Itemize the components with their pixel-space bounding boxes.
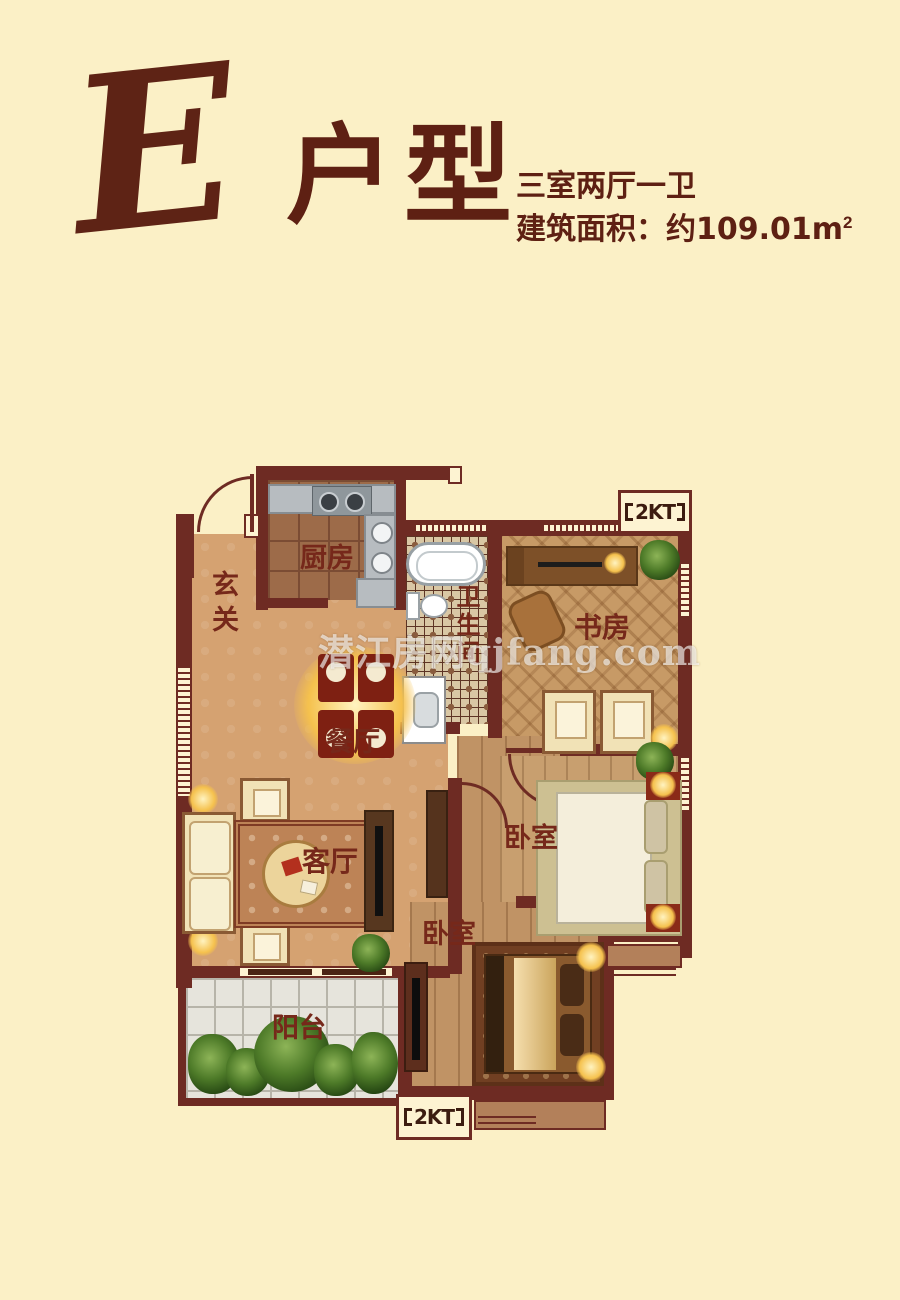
flyer-page: { "header": { "letter": "E", "title": "户… — [0, 0, 900, 1300]
toilet-bowl-icon — [420, 594, 448, 618]
bracket-icon — [456, 1108, 464, 1126]
bracket-icon — [625, 503, 633, 521]
lamp-icon — [188, 784, 218, 814]
wall-segment — [256, 598, 328, 608]
book-icon — [281, 857, 303, 877]
bed-icon — [556, 792, 652, 924]
lamp-icon — [576, 942, 606, 972]
armchair-icon — [240, 922, 290, 966]
window-ledge-hatch — [612, 968, 676, 980]
window-ledge-hatch — [478, 1116, 536, 1128]
bathtub-icon — [406, 542, 486, 586]
armchair-icon — [542, 690, 596, 754]
bed-icon — [484, 954, 592, 1074]
plant-icon — [352, 934, 390, 972]
lamp-icon — [576, 1052, 606, 1082]
wall-segment — [176, 514, 194, 578]
tv-cabinet-icon — [364, 810, 394, 932]
pillar — [448, 466, 462, 484]
wall-segment — [178, 986, 186, 1104]
wall-segment — [176, 576, 192, 666]
stove-icon — [312, 486, 372, 516]
room-label-bedroom-right: 卧室 — [504, 816, 558, 855]
room-label-bedroom-bottom: 卧室 — [422, 912, 476, 951]
watermark: 潜江房网qjfang.com — [318, 624, 701, 676]
lamp-icon — [604, 552, 626, 574]
entry-door-leaf — [250, 474, 254, 532]
lamp-icon — [650, 772, 676, 798]
sliding-door-panel — [248, 969, 312, 975]
toilet-icon — [406, 592, 420, 620]
ac-marker-bottom: 2KT — [396, 1094, 472, 1140]
fridge-icon — [356, 578, 396, 608]
window — [412, 523, 490, 533]
tv-cabinet-icon — [404, 962, 428, 1072]
bedroom-bottom-door-leaf — [458, 782, 462, 830]
bracket-icon — [404, 1108, 412, 1126]
pillow-icon — [644, 800, 668, 854]
armchair-icon — [240, 778, 290, 822]
ac-marker-top: 2KT — [618, 490, 692, 534]
sofa-icon — [182, 812, 236, 934]
wall-segment — [178, 1098, 410, 1106]
balcony-plant-icon — [352, 1032, 398, 1094]
window — [176, 664, 192, 798]
room-label-entry: 玄关 — [204, 570, 243, 640]
pillow-icon — [560, 964, 584, 1006]
wall-segment — [256, 466, 456, 480]
hall-cabinet-icon — [426, 790, 448, 898]
floor-plan: 2KT 2KT — [0, 0, 900, 1300]
room-label-dining: 餐厅 — [326, 720, 380, 759]
window — [679, 560, 691, 618]
entry-door-arc — [197, 476, 253, 532]
window-ledge — [606, 944, 682, 968]
kitchen-sink-icon — [364, 514, 396, 580]
pillow-icon — [560, 1014, 584, 1056]
bracket-icon — [677, 503, 685, 521]
room-label-kitchen: 厨房 — [300, 536, 354, 575]
lamp-icon — [650, 904, 676, 930]
room-label-living: 客厅 — [302, 840, 358, 880]
room-label-balcony: 阳台 — [272, 1006, 326, 1045]
plant-icon — [640, 540, 680, 580]
wall-segment — [256, 466, 268, 610]
